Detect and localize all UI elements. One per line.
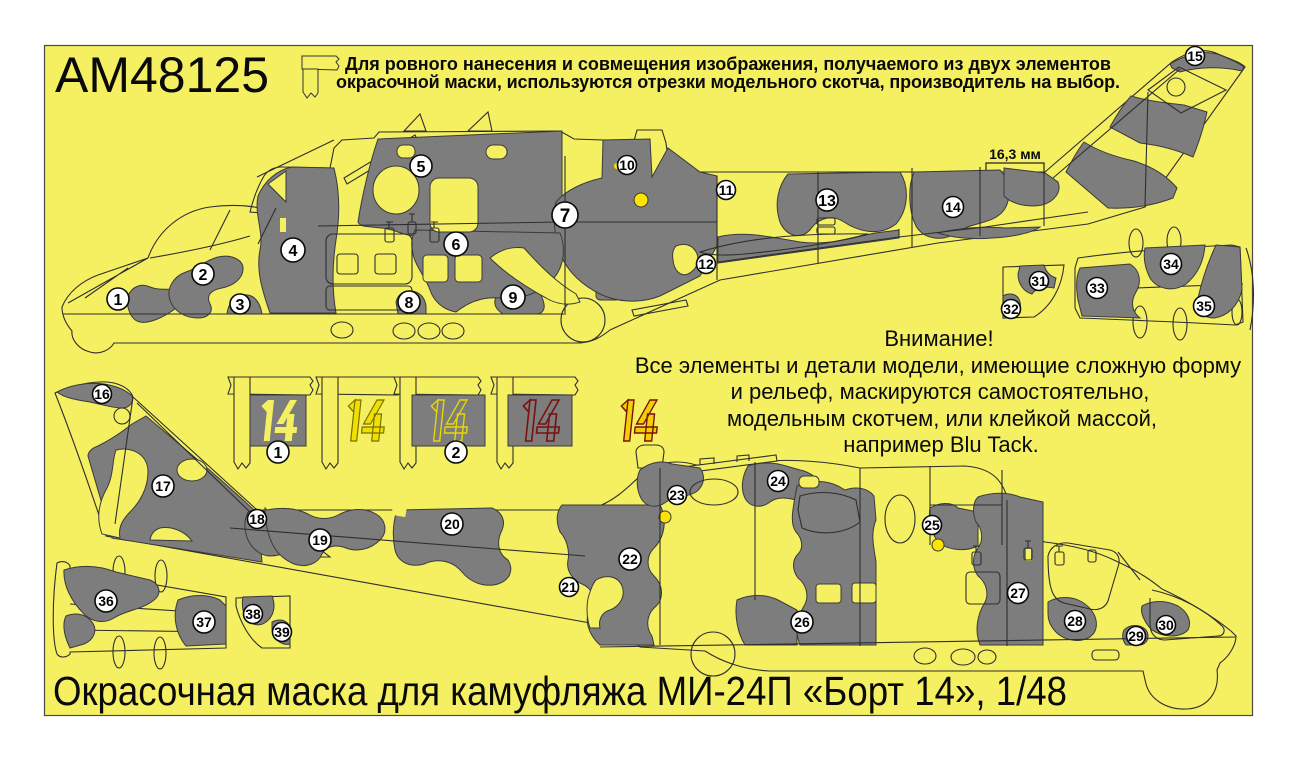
svg-text:29: 29 <box>1128 628 1144 644</box>
svg-text:17: 17 <box>155 478 171 494</box>
svg-text:9: 9 <box>509 290 518 307</box>
svg-text:20: 20 <box>444 516 460 532</box>
svg-text:18: 18 <box>249 511 265 527</box>
svg-text:2: 2 <box>199 267 208 284</box>
svg-text:10: 10 <box>619 157 635 173</box>
svg-text:22: 22 <box>622 551 638 567</box>
svg-text:35: 35 <box>1196 298 1212 314</box>
svg-text:Для ровного нанесения и совмещ: Для ровного нанесения и совмещения изобр… <box>345 54 1111 74</box>
svg-text:12: 12 <box>698 256 714 272</box>
svg-text:27: 27 <box>1010 585 1026 601</box>
svg-text:AM48125: AM48125 <box>55 47 269 103</box>
svg-text:30: 30 <box>1158 617 1174 633</box>
svg-text:34: 34 <box>1163 256 1179 272</box>
svg-text:Окрасочная маска для камуфляжа: Окрасочная маска для камуфляжа МИ-24П «Б… <box>53 668 1067 714</box>
svg-text:например Blu Tack.: например Blu Tack. <box>843 432 1038 457</box>
svg-text:32: 32 <box>1003 301 1019 317</box>
svg-text:16: 16 <box>94 386 110 402</box>
svg-text:26: 26 <box>794 614 810 630</box>
svg-text:24: 24 <box>770 473 786 489</box>
svg-text:14: 14 <box>945 199 961 215</box>
svg-text:окрасочной маски, используются: окрасочной маски, используются отрезки м… <box>336 72 1120 92</box>
svg-text:28: 28 <box>1067 613 1083 629</box>
svg-text:37: 37 <box>196 614 212 630</box>
svg-text:38: 38 <box>245 606 261 622</box>
svg-text:8: 8 <box>405 295 414 312</box>
svg-text:5: 5 <box>417 159 426 176</box>
svg-text:15: 15 <box>1187 48 1203 64</box>
svg-text:16,3 мм: 16,3 мм <box>989 146 1041 162</box>
svg-text:19: 19 <box>312 532 328 548</box>
svg-text:36: 36 <box>98 593 114 609</box>
svg-text:23: 23 <box>669 487 685 503</box>
svg-text:31: 31 <box>1031 273 1047 289</box>
svg-text:39: 39 <box>274 624 290 640</box>
svg-text:6: 6 <box>452 237 461 254</box>
svg-text:1: 1 <box>274 445 283 462</box>
svg-text:7: 7 <box>560 206 571 227</box>
svg-text:4: 4 <box>289 243 298 260</box>
svg-text:Внимание!: Внимание! <box>884 326 993 351</box>
svg-text:3: 3 <box>236 297 245 314</box>
svg-text:и рельеф, маскируются самостоя: и рельеф, маскируются самостоятельно, <box>731 379 1150 404</box>
svg-text:2: 2 <box>452 445 461 462</box>
svg-text:13: 13 <box>818 193 836 210</box>
svg-text:21: 21 <box>561 579 577 595</box>
svg-text:1: 1 <box>114 292 123 309</box>
svg-text:33: 33 <box>1089 280 1105 296</box>
svg-text:25: 25 <box>924 517 940 533</box>
svg-text:Все элементы и детали модели,: Все элементы и детали модели, имеющие сл… <box>635 353 1241 378</box>
svg-text:модельным скотчем, или клейкой: модельным скотчем, или клейкой массой, <box>727 406 1157 431</box>
svg-text:11: 11 <box>719 182 734 198</box>
